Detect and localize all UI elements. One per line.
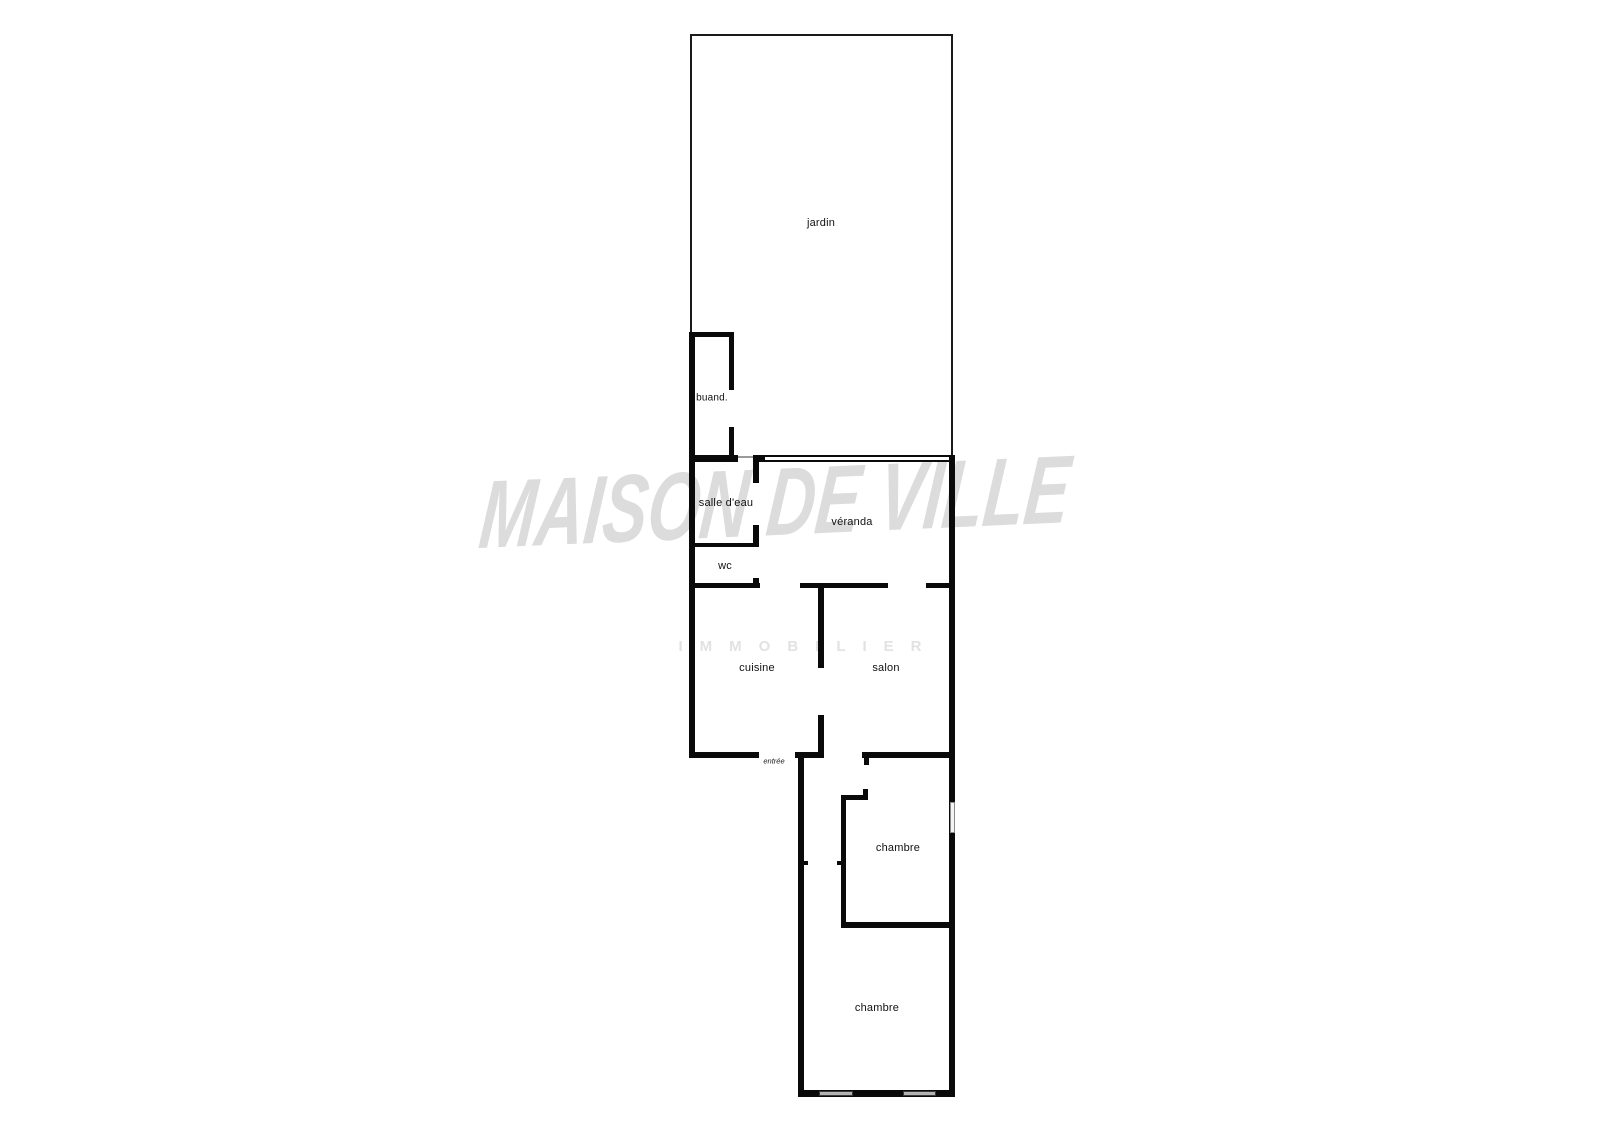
rear-wall-segment <box>753 455 765 462</box>
room-label-jardin: jardin <box>807 217 835 229</box>
bedroom1-wall-top <box>862 752 955 758</box>
veranda-wall-bottom-left <box>800 583 888 588</box>
garden-wall-top <box>690 34 953 36</box>
room-label-buanderie: buand. <box>696 393 728 404</box>
laundry-wall-left <box>689 332 695 455</box>
room-label-entree: entrée <box>763 757 784 766</box>
bedroom2-window-right <box>903 1091 936 1096</box>
watermark-subtitle: IMMOBILIER <box>640 638 960 655</box>
laundry-wall-top <box>689 332 734 337</box>
bathroom-wc-divider <box>689 543 759 547</box>
outer-wall-right-upper <box>949 455 955 758</box>
bedrooms-divider-wall <box>841 922 955 928</box>
rear-door-threshold <box>738 456 753 458</box>
hallway-door-jamb-right <box>837 861 841 865</box>
front-wall-left <box>689 752 759 758</box>
room-label-salon: salon <box>872 662 899 674</box>
room-label-chambre-1: chambre <box>876 842 920 854</box>
room-label-wc: wc <box>718 560 732 572</box>
bedroom1-door-stub-bottom <box>863 789 868 795</box>
garden-wall-left <box>690 34 692 334</box>
veranda-window-wall <box>765 455 949 462</box>
garden-wall-right <box>951 34 953 455</box>
outer-wall-left <box>689 455 695 758</box>
hallway-door-jamb-left <box>804 861 808 865</box>
wc-wall-bottom <box>689 583 760 588</box>
room-label-cuisine: cuisine <box>739 662 775 674</box>
veranda-wall-bottom-right <box>926 583 955 588</box>
room-label-veranda: véranda <box>831 516 872 528</box>
bathroom-partition-upper <box>753 462 759 483</box>
bedroom2-window-left <box>819 1091 853 1096</box>
room-label-chambre-2: chambre <box>855 1002 899 1014</box>
bedroom1-door-stub-top <box>864 756 869 765</box>
floor-plan: MAISON DE VILLE IMMOBILIER jardin buand. <box>0 0 1600 1131</box>
bedroom1-wall-left <box>841 795 846 928</box>
laundry-wall-right-upper <box>729 332 734 390</box>
hallway-wall-left <box>798 752 804 1097</box>
bedroom1-window <box>950 802 955 833</box>
room-label-salle-deau: salle d'eau <box>699 497 753 509</box>
kitchen-livingroom-divider-upper <box>818 585 824 668</box>
laundry-wall-right-lower <box>729 427 734 458</box>
kitchen-livingroom-divider-lower <box>818 715 824 758</box>
